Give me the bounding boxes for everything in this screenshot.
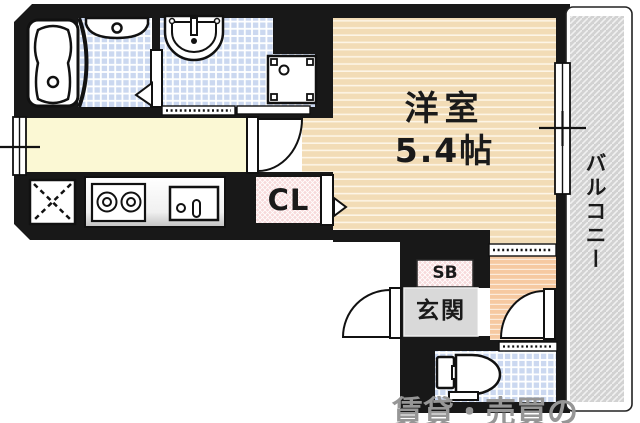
main-room-label: 洋室 <box>333 92 556 126</box>
front-door-swing-icon <box>343 288 401 338</box>
bath-basin-icon <box>86 18 148 38</box>
toilet-threshold <box>499 342 557 351</box>
main-room-size-label: 5.4帖 <box>333 134 556 167</box>
refrigerator-space-icon <box>30 180 75 224</box>
room-door-swing-icon <box>247 117 302 173</box>
balcony-label: バルコニー <box>577 152 605 312</box>
closet-label: CL <box>255 186 322 215</box>
vanity-sink-icon <box>165 16 223 60</box>
gas-stove-icon <box>92 184 145 221</box>
shoe-box-label: SB <box>417 265 473 282</box>
entrance-label: 玄関 <box>404 300 478 323</box>
washing-machine-pan-icon <box>268 56 316 103</box>
watermark-text: 賃貸・売買の <box>392 398 578 423</box>
hallway-threshold <box>489 244 556 256</box>
entrance-step <box>478 288 490 336</box>
floor-plan: 洋室 5.4帖 CL SB 玄関 バルコニー 賃貸・売買の <box>0 0 640 423</box>
kitchen-sink-icon <box>170 187 218 220</box>
kitchen-floor <box>25 118 247 172</box>
bathtub-icon <box>28 20 78 106</box>
